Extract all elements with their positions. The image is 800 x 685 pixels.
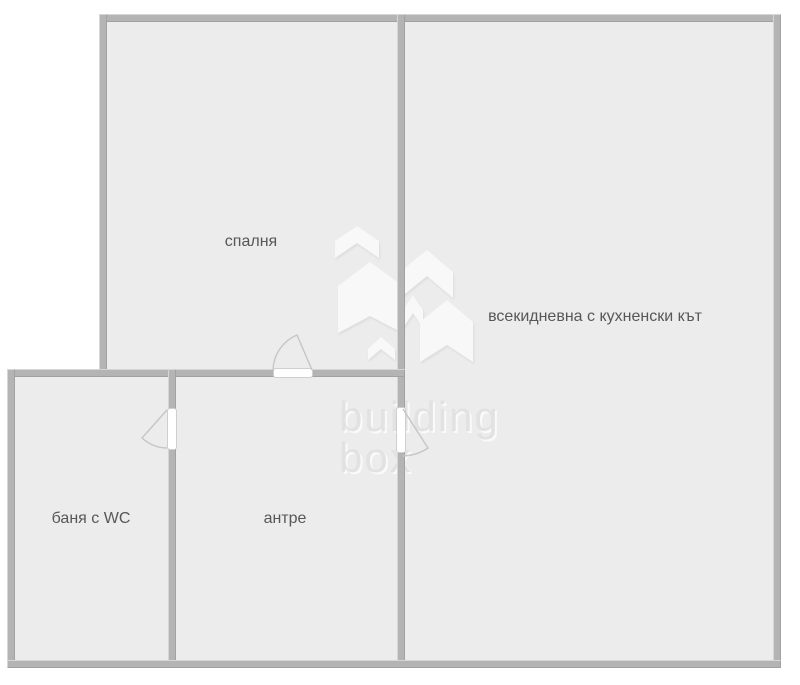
room-label-bathroom: баня с WC [52,510,131,528]
wall-right [773,14,781,668]
floor-plan: building box спалня всекидневна с кухнен… [0,0,800,685]
wall-middle-vertical [397,14,405,668]
wall-outer-left [7,369,15,668]
watermark-text-line1: building [339,396,500,438]
wall-middle-horizontal [7,369,405,377]
room-living [405,22,773,660]
wall-bottom [7,660,781,668]
wall-bedroom-left [99,14,107,377]
door-bathroom [167,408,177,450]
room-label-hall: антре [264,510,307,528]
door-bedroom [273,368,313,378]
room-label-living: всекидневна с кухненски кът [488,308,702,326]
room-bedroom [107,22,397,369]
door-living [396,407,406,453]
wall-top [99,14,781,22]
room-label-bedroom: спалня [225,233,277,251]
